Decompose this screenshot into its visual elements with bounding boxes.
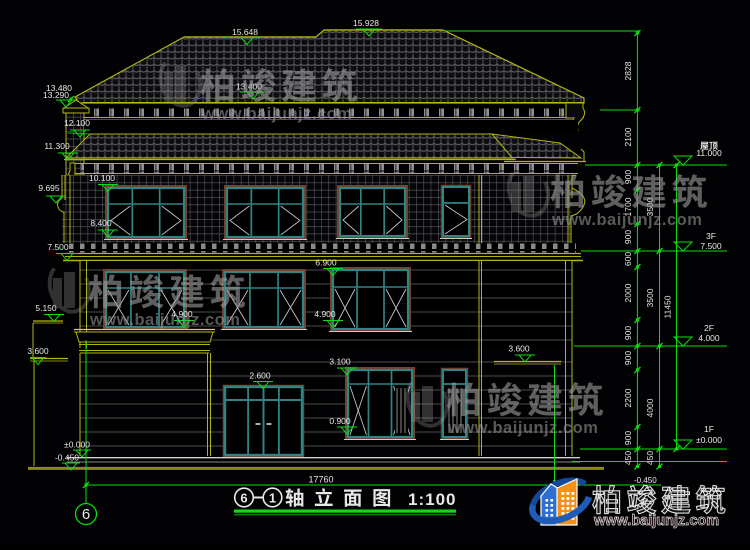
svg-text:2200: 2200 bbox=[623, 388, 633, 407]
svg-text:7.500: 7.500 bbox=[700, 241, 722, 251]
svg-text:900: 900 bbox=[623, 326, 633, 340]
svg-text:www.baijunjz.com: www.baijunjz.com bbox=[89, 311, 240, 329]
svg-text:4000: 4000 bbox=[645, 398, 655, 417]
svg-text:900: 900 bbox=[623, 170, 633, 184]
svg-text:3F: 3F bbox=[706, 231, 716, 241]
svg-text:www.baijunjz.com: www.baijunjz.com bbox=[593, 513, 719, 529]
svg-text:±0.000: ±0.000 bbox=[696, 435, 722, 445]
svg-text:12.100: 12.100 bbox=[64, 118, 90, 128]
svg-text:450: 450 bbox=[645, 451, 655, 465]
svg-text:4.900: 4.900 bbox=[314, 309, 336, 319]
svg-text:2.600: 2.600 bbox=[249, 371, 271, 381]
svg-text:3.600: 3.600 bbox=[27, 346, 49, 356]
svg-text:6.900: 6.900 bbox=[315, 258, 337, 268]
svg-text:-0.450: -0.450 bbox=[634, 476, 657, 485]
svg-text:0.900: 0.900 bbox=[329, 416, 351, 426]
svg-text:-0.450: -0.450 bbox=[55, 453, 79, 463]
svg-text:900: 900 bbox=[623, 431, 633, 445]
svg-text:900: 900 bbox=[623, 230, 633, 244]
svg-text:450: 450 bbox=[623, 451, 633, 465]
svg-text:www.baijunjz.com: www.baijunjz.com bbox=[201, 105, 352, 123]
svg-text:±0.000: ±0.000 bbox=[64, 440, 90, 450]
svg-text:www.baijunjz.com: www.baijunjz.com bbox=[551, 211, 702, 229]
svg-text:15.928: 15.928 bbox=[353, 18, 379, 28]
svg-text:600: 600 bbox=[623, 252, 633, 266]
svg-text:1:100: 1:100 bbox=[408, 490, 456, 509]
svg-text:8.400: 8.400 bbox=[90, 218, 112, 228]
svg-text:6: 6 bbox=[82, 506, 90, 523]
svg-text:900: 900 bbox=[623, 351, 633, 365]
svg-text:1: 1 bbox=[269, 491, 276, 506]
svg-text:2100: 2100 bbox=[623, 127, 633, 146]
svg-text:7.500: 7.500 bbox=[47, 242, 69, 252]
svg-text:2828: 2828 bbox=[623, 61, 633, 80]
svg-text:10.100: 10.100 bbox=[89, 173, 115, 183]
svg-text:11.000: 11.000 bbox=[696, 148, 722, 158]
svg-text:6: 6 bbox=[240, 491, 247, 506]
svg-text:3.600: 3.600 bbox=[508, 344, 530, 354]
svg-text:13.290: 13.290 bbox=[43, 90, 69, 100]
svg-text:www.baijunjz.com: www.baijunjz.com bbox=[447, 419, 598, 437]
svg-text:15.648: 15.648 bbox=[232, 27, 258, 37]
svg-text:11.300: 11.300 bbox=[44, 141, 70, 151]
svg-text:2F: 2F bbox=[704, 323, 714, 333]
svg-text:17760: 17760 bbox=[308, 475, 333, 485]
svg-text:4.000: 4.000 bbox=[698, 333, 720, 343]
svg-text:2000: 2000 bbox=[623, 283, 633, 302]
svg-text:1F: 1F bbox=[704, 424, 714, 434]
svg-text:11450: 11450 bbox=[663, 295, 673, 318]
svg-text:3.100: 3.100 bbox=[329, 357, 351, 367]
svg-text:3500: 3500 bbox=[645, 288, 655, 307]
svg-text:9.695: 9.695 bbox=[38, 183, 60, 193]
